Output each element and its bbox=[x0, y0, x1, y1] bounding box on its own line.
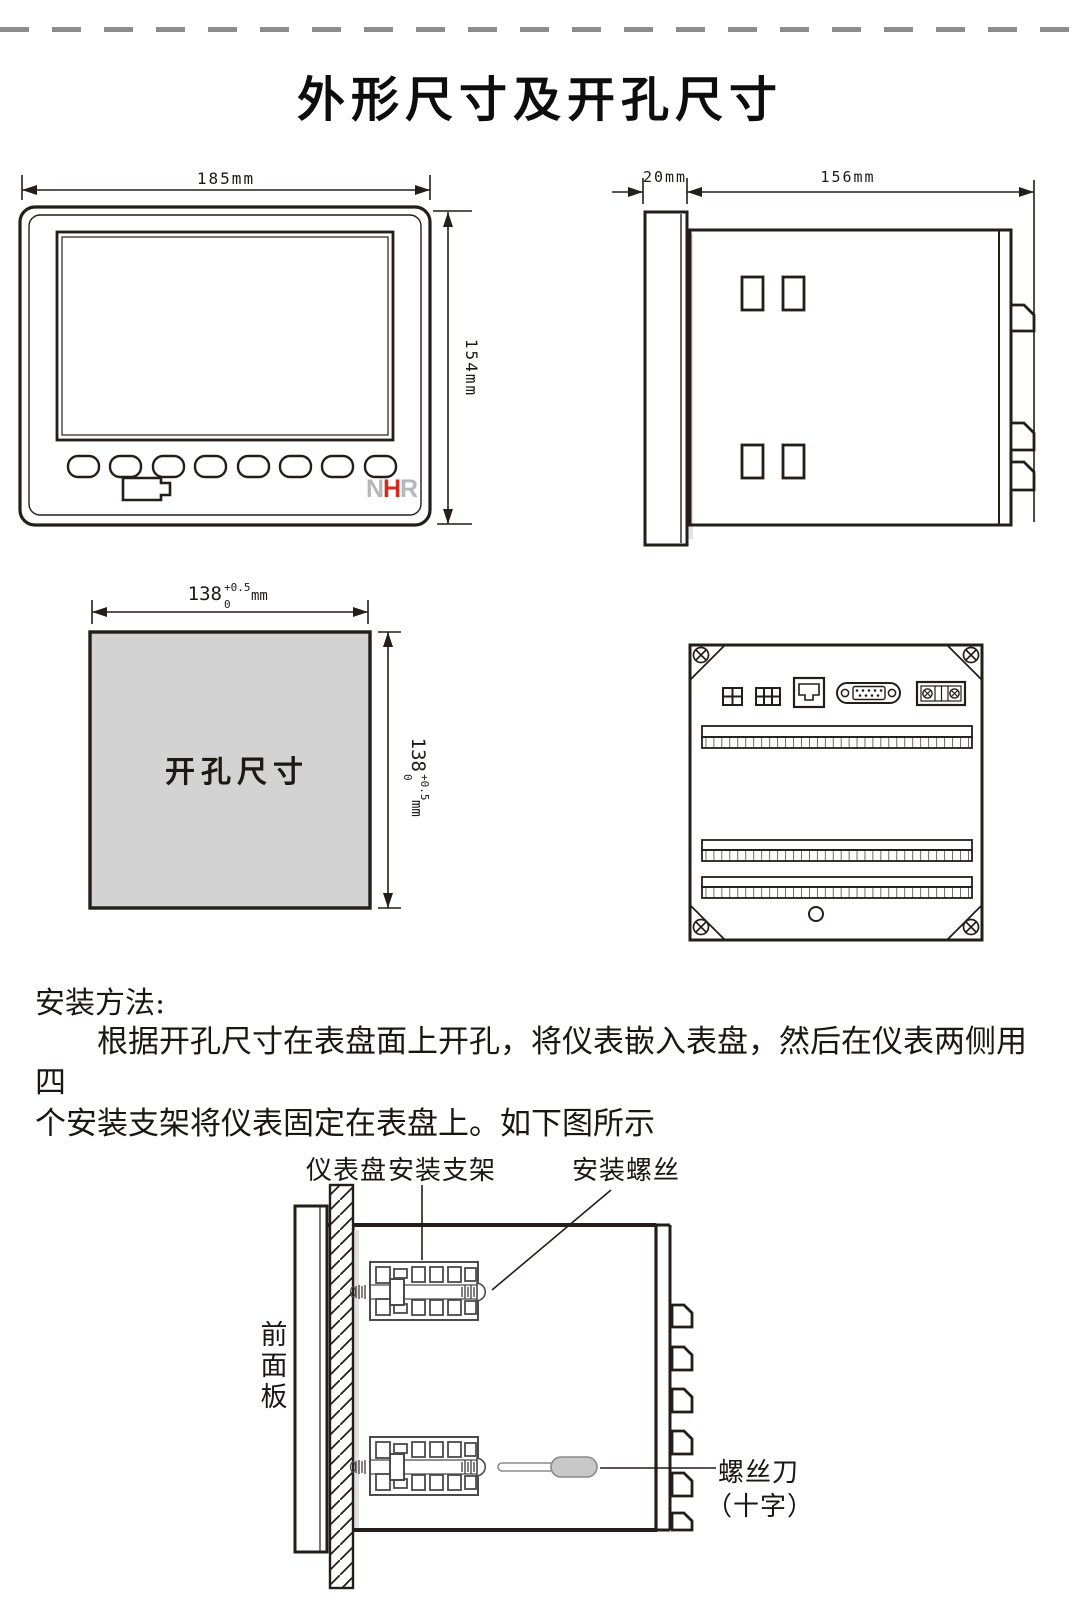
serial-port-db9 bbox=[837, 683, 900, 703]
side-view-drawing: 20mm 156mm bbox=[590, 150, 1060, 550]
front-buttons bbox=[68, 456, 396, 477]
front-view-drawing: 185mm 154mm N H R bbox=[10, 150, 490, 540]
install-body bbox=[327, 1225, 670, 1530]
logo-letter-h: H bbox=[383, 475, 401, 503]
svg-text:+0.5: +0.5 bbox=[224, 581, 251, 594]
install-method-paragraph: 根据开孔尺寸在表盘面上开孔，将仪表嵌入表盘，然后在仪表两侧用四 个安装支架将仪表… bbox=[35, 1022, 1047, 1145]
front-height-label: 154mm bbox=[462, 339, 481, 397]
front-panel-shape bbox=[295, 1206, 327, 1552]
nhr-logo: N H R bbox=[366, 475, 418, 503]
mounting-bracket-upper bbox=[351, 1262, 486, 1320]
power-terminal bbox=[917, 682, 965, 705]
usb-port bbox=[123, 478, 170, 500]
label-screwdriver-type: （十字） bbox=[706, 1486, 814, 1523]
paragraph-line-1: 根据开孔尺寸在表盘面上开孔，将仪表嵌入表盘，然后在仪表两侧用四 bbox=[35, 1022, 1047, 1104]
cutout-height-dimension bbox=[378, 632, 401, 908]
back-view-drawing bbox=[650, 605, 1030, 945]
top-dashed-divider bbox=[0, 27, 1080, 32]
side-terminal-tabs bbox=[1011, 305, 1034, 490]
page-title: 外形尺寸及开孔尺寸 bbox=[0, 60, 1080, 130]
label-front-panel: 前面板 bbox=[258, 1320, 290, 1413]
svg-text:+0.5: +0.5 bbox=[418, 774, 431, 801]
medium-connector bbox=[756, 688, 780, 705]
cutout-height-label: 138 +0.5 0 mm bbox=[401, 738, 431, 817]
cutout-drawing: 138 +0.5 0 mm 开孔尺寸 138 +0.5 0 mm bbox=[60, 560, 480, 920]
cutout-width-label: 138 +0.5 0 mm bbox=[188, 581, 268, 611]
small-connector bbox=[723, 688, 742, 705]
svg-text:0: 0 bbox=[224, 598, 231, 611]
side-body bbox=[690, 230, 1011, 525]
side-bezel bbox=[645, 212, 687, 545]
installation-drawing bbox=[220, 1140, 1080, 1613]
svg-text:mm: mm bbox=[251, 588, 268, 604]
paragraph-line-2: 个安装支架将仪表固定在表盘上。如下图所示 bbox=[35, 1104, 1047, 1145]
front-screen bbox=[57, 232, 393, 440]
cutout-area-label: 开孔尺寸 bbox=[165, 755, 309, 790]
svg-text:138: 138 bbox=[188, 583, 222, 605]
label-instrument-panel: 仪表盘 bbox=[306, 1150, 387, 1187]
ethernet-port bbox=[794, 678, 824, 707]
install-terminal-tabs bbox=[672, 1305, 692, 1530]
side-mounting-slots bbox=[742, 277, 804, 478]
instrument-panel-wall bbox=[330, 1185, 353, 1588]
front-width-label: 185mm bbox=[197, 169, 255, 188]
svg-text:138: 138 bbox=[407, 738, 429, 772]
side-bezel-depth-label: 20mm bbox=[643, 168, 687, 186]
logo-letter-n: N bbox=[366, 475, 384, 503]
svg-text:mm: mm bbox=[408, 800, 424, 817]
terminal-strip-1 bbox=[702, 726, 972, 748]
manual-page: { "page": { "title": "外形尺寸及开孔尺寸", "headi… bbox=[0, 0, 1080, 1613]
screwdriver bbox=[498, 1457, 597, 1477]
install-method-heading: 安装方法: bbox=[35, 978, 165, 1022]
terminal-strip-3 bbox=[702, 877, 972, 898]
back-hole bbox=[809, 907, 823, 921]
label-screwdriver: 螺丝刀 bbox=[718, 1452, 799, 1489]
terminal-strip-2 bbox=[702, 840, 972, 861]
logo-letter-r: R bbox=[400, 475, 418, 503]
label-mounting-screw: 安装螺丝 bbox=[572, 1150, 680, 1187]
svg-text:0: 0 bbox=[401, 774, 414, 781]
mounting-bracket-lower bbox=[351, 1437, 486, 1495]
side-body-depth-label: 156mm bbox=[820, 168, 875, 186]
label-mounting-bracket: 安装支架 bbox=[388, 1150, 496, 1187]
